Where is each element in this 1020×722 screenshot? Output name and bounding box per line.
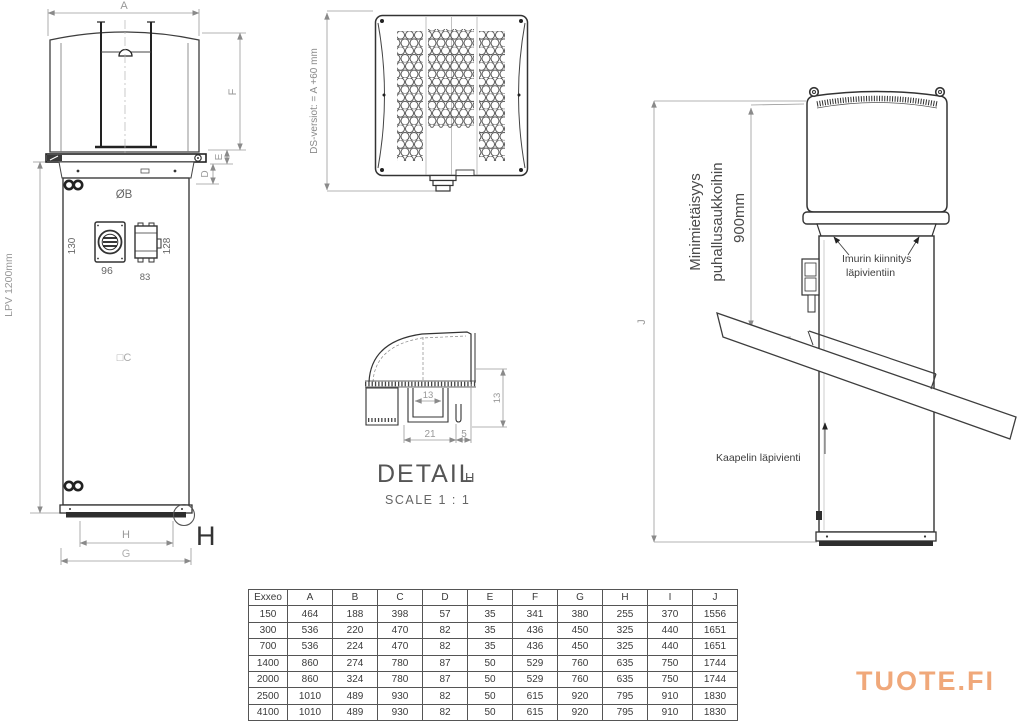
table-cell: 188 xyxy=(333,606,378,622)
dim-e-label: E xyxy=(214,153,225,160)
table-header-cell: E xyxy=(468,590,513,606)
clearance-label-line1: Minimietäisyys xyxy=(687,173,704,271)
table-cell: 1830 xyxy=(693,688,738,704)
cable-label: Kaapelin läpivienti xyxy=(716,452,801,464)
table-cell: 700 xyxy=(249,639,288,655)
table-cell: 82 xyxy=(423,688,468,704)
table-cell: 341 xyxy=(513,606,558,622)
detail-scale-note: SCALE 1 : 1 xyxy=(385,493,470,507)
table-cell: 35 xyxy=(468,622,513,638)
table-cell: 1830 xyxy=(693,704,738,720)
table-cell: 1651 xyxy=(693,639,738,655)
table-cell: 795 xyxy=(603,704,648,720)
table-cell: 470 xyxy=(378,639,423,655)
table-cell: 57 xyxy=(423,606,468,622)
mount-label-line2: läpivientiin xyxy=(846,267,895,279)
table-cell: 860 xyxy=(288,655,333,671)
table-cell: 50 xyxy=(468,655,513,671)
table-cell: 910 xyxy=(648,688,693,704)
table-cell: 82 xyxy=(423,704,468,720)
detail-view-drawing: 13 21 5 13 DETAIL H SCALE 1 : 1 xyxy=(355,325,525,520)
table-row: 140086027478087505297606357501744 xyxy=(249,655,738,671)
table-cell: 35 xyxy=(468,639,513,655)
grommet xyxy=(65,181,73,189)
dim-b-label: ØB xyxy=(116,189,133,201)
detail-profile xyxy=(365,332,476,425)
table-cell: 224 xyxy=(333,639,378,655)
table-cell: 1744 xyxy=(693,655,738,671)
table-cell: 82 xyxy=(423,622,468,638)
dim-130-label: 130 xyxy=(67,237,78,254)
dim-83-label: 83 xyxy=(140,272,151,283)
table-cell: 50 xyxy=(468,688,513,704)
perforated-panel-middle xyxy=(428,29,474,128)
table-header-cell: D xyxy=(423,590,468,606)
table-cell: 920 xyxy=(558,704,603,720)
spec-table-header-row: ExxeoABCDEFGHIJ xyxy=(249,590,738,606)
table-header-cell: Exxeo xyxy=(249,590,288,606)
table-cell: 489 xyxy=(333,688,378,704)
table-cell: 529 xyxy=(513,655,558,671)
base-side xyxy=(816,532,936,546)
table-header-cell: B xyxy=(333,590,378,606)
detail-dim-height-label: 13 xyxy=(492,393,503,404)
table-cell: 529 xyxy=(513,671,558,687)
table-cell: 450 xyxy=(558,622,603,638)
detail-marker-letter: H xyxy=(196,521,216,551)
top-view-body xyxy=(376,16,528,192)
dim-h-label: H xyxy=(122,529,130,541)
main-switch xyxy=(95,222,125,262)
detail-dim-inner-label: 13 xyxy=(423,390,434,401)
drawing-sheet: A F E D ØB 130 128 96 83 LPV 1200mm □C H… xyxy=(0,0,1020,722)
table-cell: 50 xyxy=(468,671,513,687)
grommet xyxy=(74,482,82,490)
table-cell: 930 xyxy=(378,704,423,720)
lifting-eye xyxy=(936,88,945,97)
table-cell: 300 xyxy=(249,622,288,638)
table-cell: 436 xyxy=(513,622,558,638)
table-cell: 635 xyxy=(603,655,648,671)
table-cell: 220 xyxy=(333,622,378,638)
perforated-panel-right xyxy=(479,31,505,161)
table-cell: 436 xyxy=(513,639,558,655)
table-cell: 1010 xyxy=(288,704,333,720)
watermark-logo: TUOTE.FI xyxy=(856,666,995,697)
cable-gland xyxy=(816,511,822,520)
table-cell: 255 xyxy=(603,606,648,622)
table-cell: 615 xyxy=(513,688,558,704)
table-header-cell: G xyxy=(558,590,603,606)
dim-d-label: D xyxy=(200,170,211,177)
detail-title: DETAIL xyxy=(377,460,475,488)
table-cell: 82 xyxy=(423,639,468,655)
ds-version-note: DS-versiot: = A +60 mm xyxy=(309,48,320,154)
hood-base-bar xyxy=(46,154,206,162)
table-cell: 2500 xyxy=(249,688,288,704)
table-cell: 635 xyxy=(603,671,648,687)
junction-box xyxy=(135,223,161,262)
dim-96-label: 96 xyxy=(101,265,113,277)
table-cell: 2000 xyxy=(249,671,288,687)
dim-lpv-label: LPV 1200mm xyxy=(3,253,15,317)
dim-g-label: G xyxy=(122,548,131,560)
spec-table: ExxeoABCDEFGHIJ 150464188398573534138025… xyxy=(248,589,738,721)
table-cell: 380 xyxy=(558,606,603,622)
table-row: 30053622047082354364503254401651 xyxy=(249,622,738,638)
table-cell: 910 xyxy=(648,704,693,720)
table-cell: 370 xyxy=(648,606,693,622)
flange-front xyxy=(59,162,194,178)
table-header-cell: I xyxy=(648,590,693,606)
duct-connector-stub xyxy=(430,176,456,192)
table-cell: 150 xyxy=(249,606,288,622)
side-view-drawing: J Minimietäisyys puhallusaukkoihin 900mm xyxy=(630,80,1020,580)
table-header-cell: H xyxy=(603,590,648,606)
table-cell: 274 xyxy=(333,655,378,671)
table-cell: 536 xyxy=(288,639,333,655)
grommet xyxy=(65,482,73,490)
table-cell: 325 xyxy=(603,639,648,655)
column-front xyxy=(63,178,189,505)
table-header-cell: A xyxy=(288,590,333,606)
table-cell: 930 xyxy=(378,688,423,704)
dim-128-label: 128 xyxy=(162,237,173,254)
table-row: 70053622447082354364503254401651 xyxy=(249,639,738,655)
table-cell: 780 xyxy=(378,671,423,687)
table-header-cell: F xyxy=(513,590,558,606)
detail-title-ref: H xyxy=(465,470,474,485)
table-row: 15046418839857353413802553701556 xyxy=(249,606,738,622)
dim-c-label: □C xyxy=(117,352,132,364)
table-cell: 1556 xyxy=(693,606,738,622)
table-cell: 615 xyxy=(513,704,558,720)
table-cell: 398 xyxy=(378,606,423,622)
table-cell: 440 xyxy=(648,639,693,655)
table-cell: 325 xyxy=(603,622,648,638)
table-row: 4100101048993082506159207959101830 xyxy=(249,704,738,720)
table-cell: 450 xyxy=(558,639,603,655)
table-cell: 760 xyxy=(558,671,603,687)
top-view-drawing: DS-versiot: = A +60 mm xyxy=(300,0,550,220)
table-cell: 1400 xyxy=(249,655,288,671)
table-cell: 50 xyxy=(468,704,513,720)
table-cell: 795 xyxy=(603,688,648,704)
dim-f-label: F xyxy=(227,88,239,95)
mount-label-line1: Imurin kiinnitys xyxy=(842,253,911,265)
table-cell: 750 xyxy=(648,671,693,687)
front-view-drawing: A F E D ØB 130 128 96 83 LPV 1200mm □C H… xyxy=(0,0,260,600)
table-cell: 1010 xyxy=(288,688,333,704)
table-cell: 760 xyxy=(558,655,603,671)
dim-j-label: J xyxy=(636,319,648,325)
table-cell: 464 xyxy=(288,606,333,622)
clearance-value-label: 900mm xyxy=(731,193,748,243)
table-header-cell: C xyxy=(378,590,423,606)
table-cell: 1651 xyxy=(693,622,738,638)
table-cell: 860 xyxy=(288,671,333,687)
table-cell: 4100 xyxy=(249,704,288,720)
table-cell: 87 xyxy=(423,655,468,671)
hood-side xyxy=(803,88,949,236)
table-cell: 470 xyxy=(378,622,423,638)
grommet xyxy=(74,181,82,189)
latch xyxy=(802,259,819,312)
table-header-cell: J xyxy=(693,590,738,606)
dim-a-label: A xyxy=(120,0,128,12)
table-row: 2500101048993082506159207959101830 xyxy=(249,688,738,704)
lifting-eye xyxy=(810,88,819,97)
hood-front xyxy=(50,20,199,154)
perforated-panel-left xyxy=(397,31,423,161)
table-cell: 920 xyxy=(558,688,603,704)
table-cell: 87 xyxy=(423,671,468,687)
table-cell: 536 xyxy=(288,622,333,638)
table-cell: 440 xyxy=(648,622,693,638)
table-cell: 489 xyxy=(333,704,378,720)
table-row: 200086032478087505297606357501744 xyxy=(249,671,738,687)
table-cell: 35 xyxy=(468,606,513,622)
table-cell: 780 xyxy=(378,655,423,671)
detail-dim-left-label: 21 xyxy=(424,429,436,440)
table-cell: 750 xyxy=(648,655,693,671)
spec-table-body: 1504641883985735341380255370155630053622… xyxy=(249,606,738,721)
table-cell: 324 xyxy=(333,671,378,687)
clearance-label-line2: puhallusaukkoihin xyxy=(709,162,726,281)
detail-dim-right-label: 5 xyxy=(461,429,467,440)
table-cell: 1744 xyxy=(693,671,738,687)
